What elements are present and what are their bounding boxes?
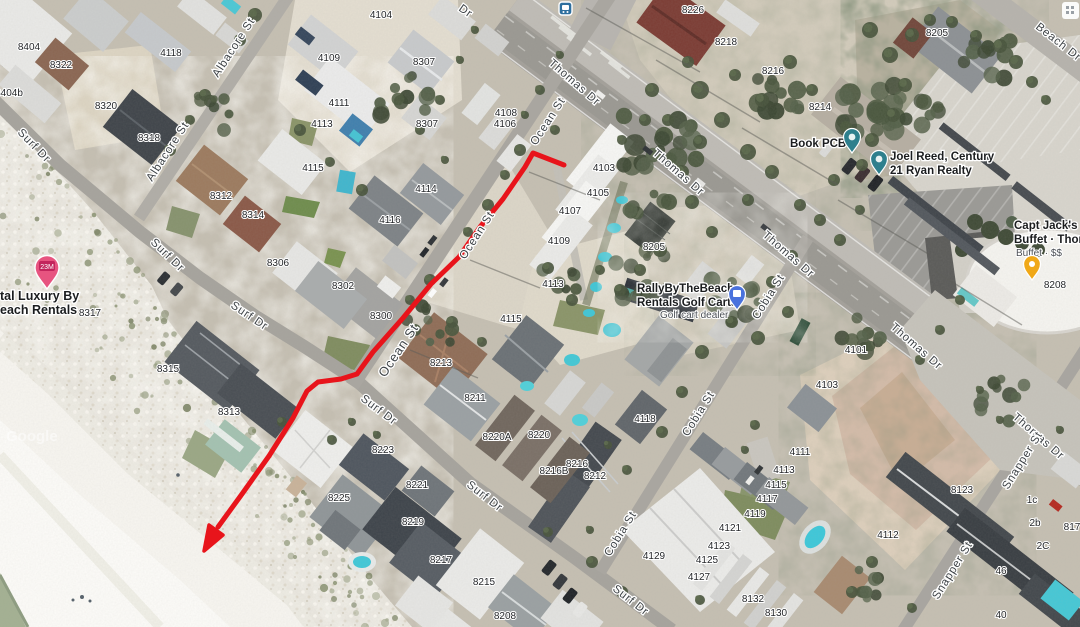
svg-text:4106: 4106 [494,119,517,130]
svg-text:8208: 8208 [1044,280,1067,291]
svg-text:40: 40 [995,610,1007,621]
svg-text:8213: 8213 [430,358,453,369]
svg-text:4108: 4108 [495,108,518,119]
svg-text:8302: 8302 [332,281,355,292]
svg-text:8404b: 8404b [0,88,23,99]
svg-text:4114: 4114 [415,184,437,195]
svg-text:8205: 8205 [643,242,666,253]
svg-text:4115: 4115 [765,480,787,491]
svg-text:8214: 8214 [809,102,832,113]
svg-text:8404: 8404 [18,42,41,53]
svg-text:8211: 8211 [464,393,486,404]
svg-text:4112: 4112 [877,530,899,541]
svg-text:8208: 8208 [494,611,517,622]
svg-text:4111: 4111 [790,447,811,458]
svg-text:8317: 8317 [79,308,102,319]
svg-text:8315: 8315 [157,364,180,375]
svg-text:4113: 4113 [773,465,795,476]
svg-text:4109: 4109 [318,53,341,64]
svg-text:8216: 8216 [762,66,785,77]
svg-text:4119: 4119 [744,509,766,520]
svg-text:8318: 8318 [138,133,161,144]
svg-text:8219: 8219 [402,517,425,528]
svg-text:4113: 4113 [311,119,333,130]
svg-text:46: 46 [995,566,1007,577]
svg-text:8307: 8307 [413,57,436,68]
svg-text:8218: 8218 [715,37,738,48]
svg-text:Golf cart dealer: Golf cart dealer [660,310,729,321]
svg-text:8130: 8130 [765,608,788,619]
svg-text:8223: 8223 [372,445,395,456]
svg-text:4103: 4103 [816,380,839,391]
svg-text:4125: 4125 [696,555,719,566]
svg-text:4113: 4113 [542,279,564,290]
svg-text:8307: 8307 [416,119,439,130]
svg-text:21 Ryan Realty: 21 Ryan Realty [890,165,972,177]
svg-text:4103: 4103 [593,163,616,174]
svg-text:8212: 8212 [584,471,607,482]
svg-text:4129: 4129 [643,551,666,562]
svg-text:4123: 4123 [708,541,731,552]
svg-text:4115: 4115 [302,163,324,174]
svg-text:8313: 8313 [218,407,241,418]
svg-text:8314: 8314 [242,210,265,221]
svg-text:1c: 1c [1027,495,1038,506]
svg-text:4127: 4127 [688,572,711,583]
svg-text:Book PCB: Book PCB [790,138,846,150]
svg-text:RallyByTheBeach: RallyByTheBeach [637,283,734,295]
svg-text:4118: 4118 [160,48,182,59]
svg-text:8217: 8217 [430,555,453,566]
svg-text:8300: 8300 [370,311,393,322]
svg-text:8306: 8306 [267,258,290,269]
svg-text:8132: 8132 [742,594,765,605]
svg-text:Rentals Golf Carts: Rentals Golf Carts [637,297,737,309]
svg-text:Google: Google [6,428,58,445]
svg-text:each Rentals: each Rentals [0,303,77,317]
svg-text:4116: 4116 [379,215,401,226]
svg-text:2b: 2b [1029,518,1041,529]
svg-text:8220: 8220 [528,430,551,441]
svg-text:8123: 8123 [951,485,974,496]
svg-text:4105: 4105 [587,188,610,199]
svg-text:8225: 8225 [328,493,351,504]
svg-text:8216B: 8216B [540,466,569,477]
svg-text:8215: 8215 [473,577,496,588]
svg-text:Buffet · $$: Buffet · $$ [1016,248,1062,259]
svg-text:Buffet · Thom: Buffet · Thom [1014,234,1080,246]
svg-text:4118: 4118 [634,414,656,425]
svg-text:Joel Reed, Century: Joel Reed, Century [890,151,995,163]
svg-text:8220A: 8220A [483,432,512,443]
svg-text:4121: 4121 [719,523,742,534]
svg-text:4117: 4117 [756,494,778,505]
svg-text:8312: 8312 [210,191,233,202]
svg-text:4115: 4115 [500,314,522,325]
svg-text:2C: 2C [1037,541,1050,552]
svg-text:817: 817 [1064,522,1080,533]
svg-text:23M: 23M [40,264,54,271]
svg-text:4109: 4109 [548,236,571,247]
svg-text:8205: 8205 [926,28,949,39]
svg-text:8216: 8216 [566,459,589,470]
svg-text:8226: 8226 [682,5,705,16]
svg-text:tal Luxury By: tal Luxury By [0,289,79,303]
svg-text:8322: 8322 [50,60,73,71]
svg-text:8320: 8320 [95,101,118,112]
svg-text:4104: 4104 [370,10,393,21]
svg-text:4111: 4111 [329,98,350,109]
svg-text:Capt Jack's F: Capt Jack's F [1014,220,1080,232]
svg-text:4107: 4107 [559,206,582,217]
svg-text:8221: 8221 [406,480,429,491]
svg-text:4101: 4101 [845,345,868,356]
